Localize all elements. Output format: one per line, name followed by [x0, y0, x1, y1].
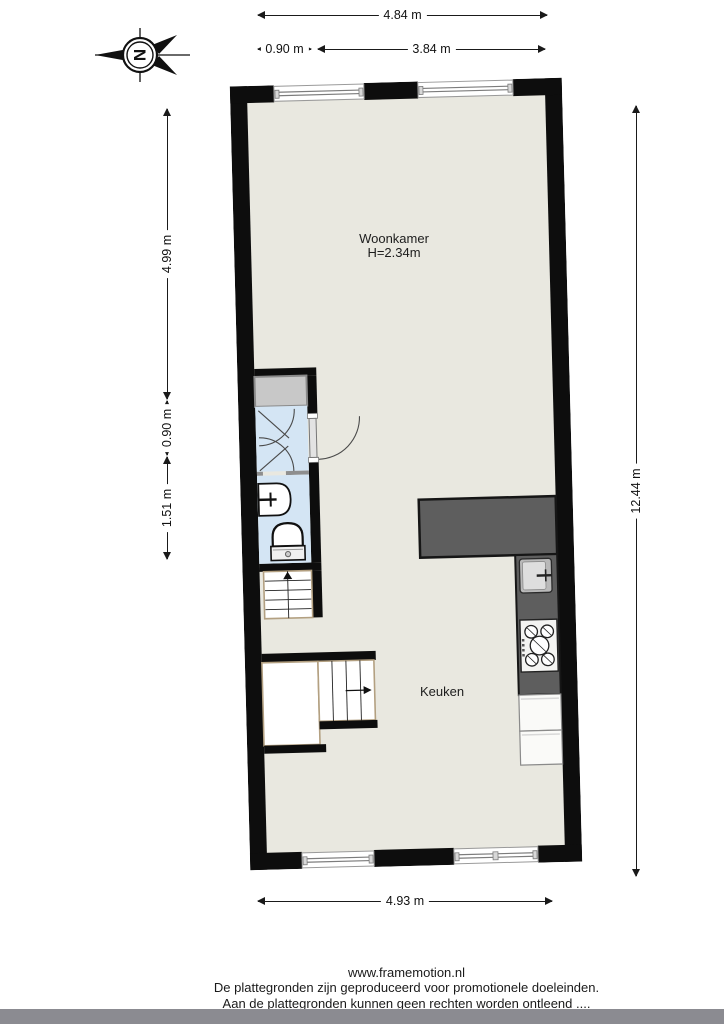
- floorplan-page: { "compass": { "letter": "N" }, "plan": …: [0, 0, 724, 1024]
- stove: [520, 619, 558, 672]
- shower-room: [255, 406, 309, 476]
- arrow-right-icon: [540, 11, 548, 19]
- dimension-label: 3.84 m: [407, 42, 455, 56]
- footer: www.framemotion.nl De plattegronden zijn…: [90, 965, 723, 1011]
- dimension-top-left: 0.90 m: [257, 43, 312, 56]
- kitchen-cabinets: [519, 694, 563, 765]
- closet: [254, 376, 307, 407]
- dimension-label: 1.51 m: [160, 484, 174, 532]
- woonkamer-label: Woonkamer: [359, 231, 429, 246]
- dimension-top-right: 3.84 m: [317, 43, 546, 56]
- dimension-bottom-total: 4.93 m: [257, 895, 553, 908]
- north-compass-icon: N: [88, 20, 196, 92]
- woonkamer-height-label: H=2.34m: [367, 245, 420, 260]
- dimension-top-total: 4.84 m: [257, 9, 548, 22]
- dimension-right-total: 12.44 m: [630, 105, 643, 877]
- floor-plan-svg: [230, 78, 582, 870]
- dimension-left-lower: 1.51 m: [161, 456, 174, 560]
- stairs-up: [264, 571, 313, 619]
- dimension-label: 4.99 m: [160, 230, 174, 278]
- arrow-down-icon: [163, 392, 171, 400]
- keuken-label: Keuken: [420, 684, 464, 699]
- arrow-up-icon: [163, 108, 171, 116]
- toilet: [270, 523, 305, 561]
- window: [418, 80, 513, 97]
- dimension-label: 4.93 m: [381, 894, 429, 908]
- footer-website: www.framemotion.nl: [90, 965, 723, 980]
- arrow-left-icon: [257, 11, 265, 19]
- window: [302, 851, 374, 868]
- compass-letter: N: [130, 49, 149, 61]
- kitchen-sink: [519, 558, 552, 593]
- dimension-left-middle: 0.90 m: [161, 400, 174, 456]
- floor-plan: [230, 78, 582, 870]
- dimension-label: 12.44 m: [629, 463, 643, 518]
- sink-basin: [258, 483, 291, 516]
- dimension-left-upper: 4.99 m: [161, 108, 174, 400]
- bottom-gray-bar: [0, 1009, 724, 1024]
- footer-disclaimer-1: De plattegronden zijn geproduceerd voor …: [90, 980, 723, 995]
- dimension-label: 4.84 m: [378, 8, 426, 22]
- window: [454, 847, 538, 864]
- dimension-label: 0.90 m: [160, 404, 174, 452]
- dimension-label: 0.90 m: [260, 42, 308, 56]
- window: [274, 84, 364, 101]
